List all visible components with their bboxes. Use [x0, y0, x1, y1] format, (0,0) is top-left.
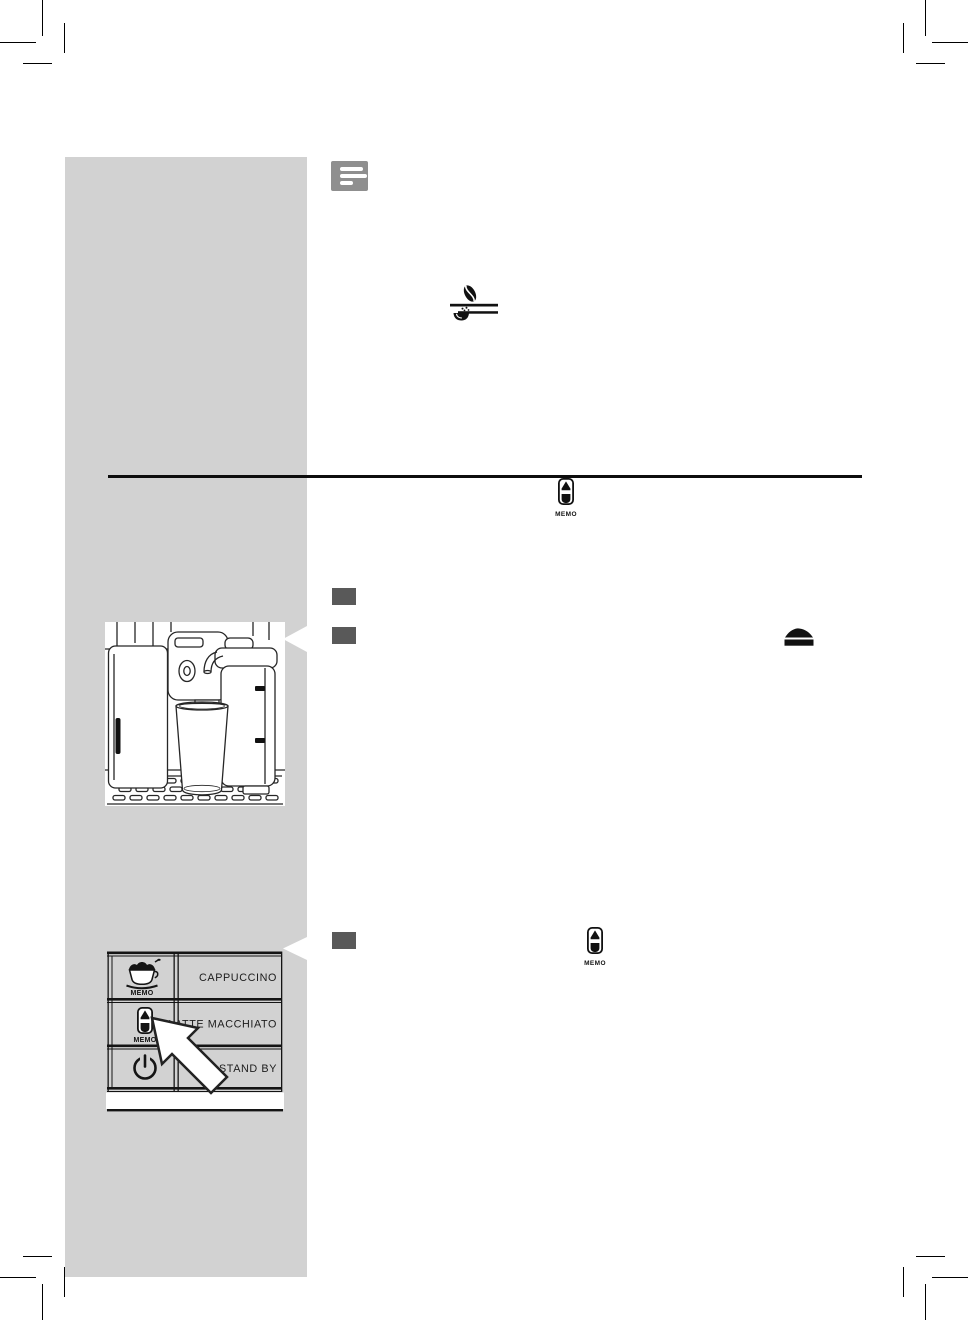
- standby-button-label: STAND BY: [219, 1063, 277, 1075]
- memo-label: MEMO: [579, 960, 611, 967]
- step-1-box: [332, 588, 356, 605]
- machine-illustration: [105, 622, 285, 806]
- latte-macchiato-glass-memo-icon: [138, 1008, 152, 1033]
- crop-mark: [925, 0, 926, 36]
- step-2-box: [332, 627, 356, 644]
- coffee-machine-drawing: [105, 622, 285, 806]
- memo-label: MEMO: [550, 511, 582, 518]
- crop-mark: [932, 1277, 968, 1278]
- crop-mark: [925, 1284, 926, 1320]
- crop-mark: [916, 1256, 945, 1257]
- crop-mark: [903, 1267, 904, 1297]
- memo-label: MEMO: [134, 1037, 157, 1044]
- control-panel-illustration: MEMO CAPPUCCINO MEMO LATTE MACCHIATO STA…: [105, 938, 285, 1112]
- crop-mark: [64, 23, 65, 53]
- ground-coffee-mound-icon: [783, 624, 815, 646]
- memo-callout: MEMO: [550, 478, 582, 518]
- coffee-bean-over-preground-icon: [449, 283, 501, 323]
- crop-mark: [903, 23, 904, 53]
- crop-mark: [42, 0, 43, 36]
- note-icon-bar: [340, 167, 363, 172]
- crop-mark: [932, 42, 968, 43]
- control-panel-drawing: MEMO CAPPUCCINO MEMO LATTE MACCHIATO STA…: [105, 938, 285, 1112]
- crop-mark: [916, 63, 945, 64]
- cappuccino-button-label: CAPPUCCINO: [199, 972, 277, 984]
- manual-page: MEMO: [0, 0, 968, 1320]
- note-icon-bar: [340, 181, 353, 186]
- note-icon-bar: [340, 174, 367, 179]
- memo-label: MEMO: [131, 990, 154, 997]
- step-3-box: [332, 932, 356, 949]
- crop-mark: [23, 63, 52, 64]
- crop-mark: [23, 1256, 52, 1257]
- crop-mark: [0, 42, 36, 43]
- latte-macchiato-glass-icon: [558, 478, 574, 505]
- latte-macchiato-glass-icon: [587, 927, 603, 954]
- note-icon: [331, 161, 368, 191]
- section-divider: [108, 475, 862, 478]
- memo-callout: MEMO: [579, 927, 611, 967]
- crop-mark: [42, 1284, 43, 1320]
- crop-mark: [0, 1277, 36, 1278]
